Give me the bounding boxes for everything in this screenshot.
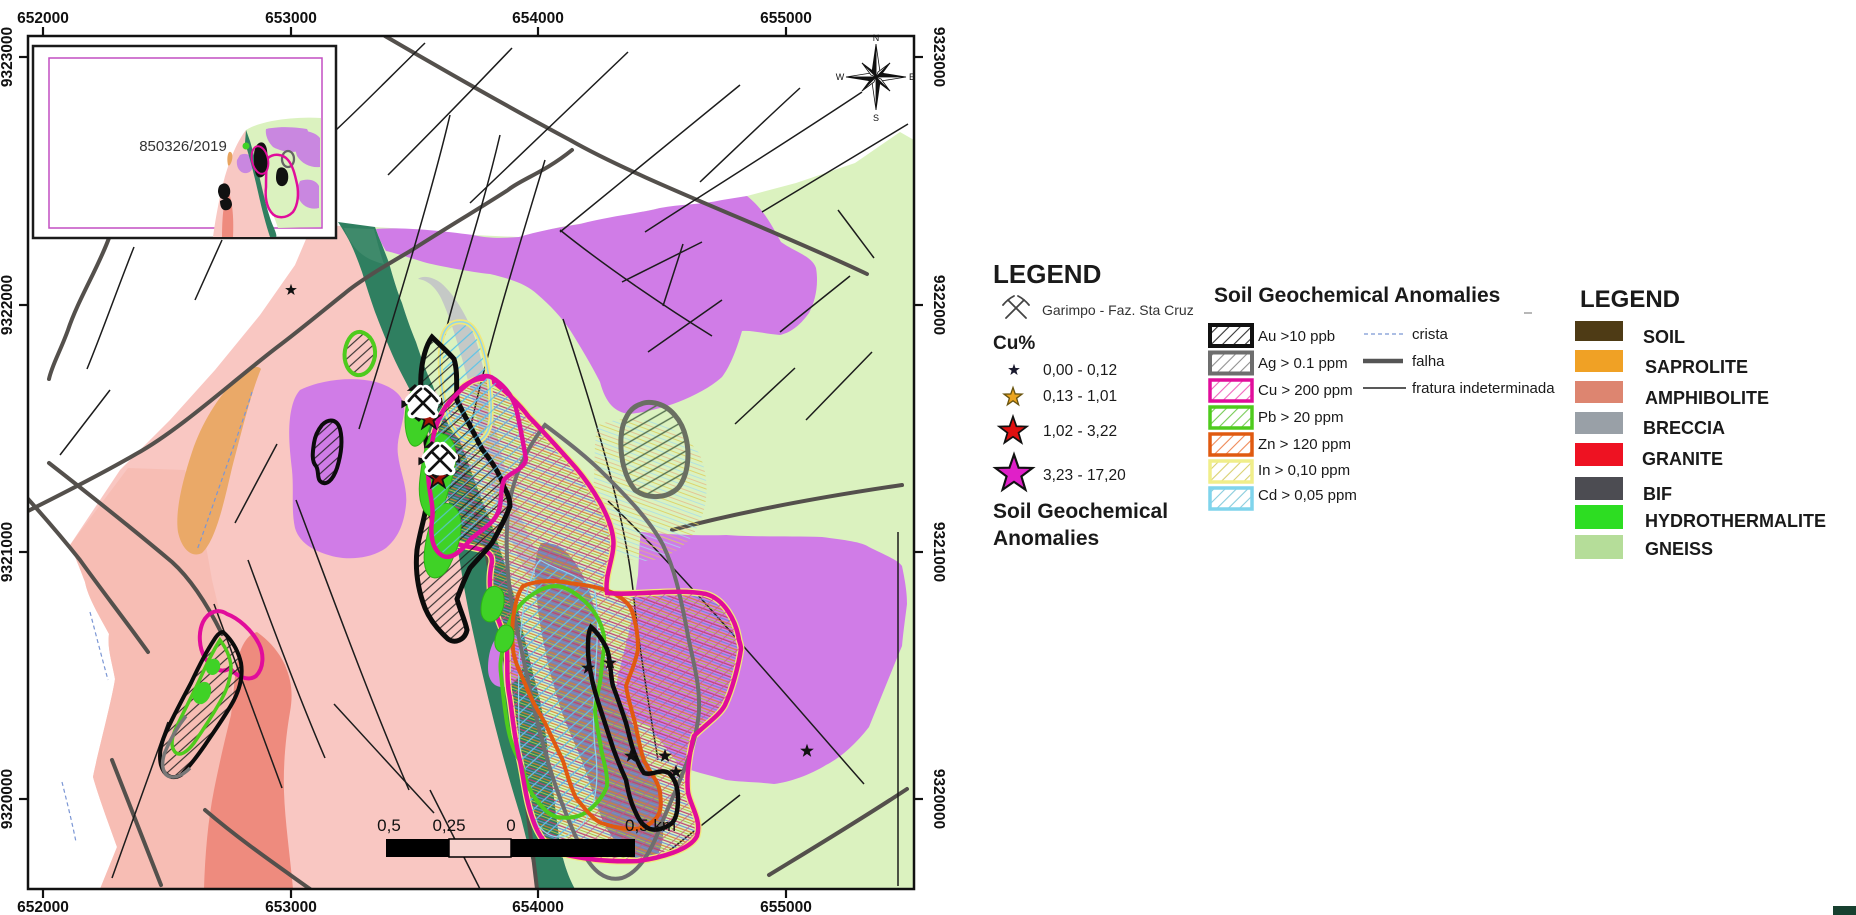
svg-text:In > 0,10 ppm: In > 0,10 ppm bbox=[1258, 462, 1350, 479]
svg-text:9321000: 9321000 bbox=[930, 522, 947, 582]
svg-text:3,23 - 17,20: 3,23 - 17,20 bbox=[1043, 467, 1126, 484]
svg-text:Cu > 200 ppm: Cu > 200 ppm bbox=[1258, 382, 1353, 399]
svg-text:GNEISS: GNEISS bbox=[1645, 539, 1713, 559]
svg-text:LEGEND: LEGEND bbox=[993, 259, 1101, 289]
svg-text:652000: 652000 bbox=[17, 10, 69, 27]
svg-text:fratura indeterminada: fratura indeterminada bbox=[1412, 380, 1555, 397]
svg-text:Ag > 0.1 ppm: Ag > 0.1 ppm bbox=[1258, 355, 1348, 372]
svg-text:Pb > 20 ppm: Pb > 20 ppm bbox=[1258, 409, 1343, 426]
svg-text:Garimpo - Faz. Sta Cruz: Garimpo - Faz. Sta Cruz bbox=[1042, 302, 1194, 318]
svg-text:SOIL: SOIL bbox=[1643, 327, 1685, 347]
svg-text:9320000: 9320000 bbox=[930, 769, 947, 829]
svg-text:GRANITE: GRANITE bbox=[1642, 449, 1723, 469]
svg-text:Cd > 0,05 ppm: Cd > 0,05 ppm bbox=[1258, 487, 1357, 504]
svg-text:falha: falha bbox=[1412, 353, 1445, 370]
svg-text:0,5: 0,5 bbox=[377, 816, 401, 835]
svg-text:850326/2019: 850326/2019 bbox=[139, 138, 227, 155]
svg-text:BRECCIA: BRECCIA bbox=[1643, 418, 1725, 438]
svg-text:9321000: 9321000 bbox=[0, 522, 16, 582]
svg-text:W: W bbox=[836, 72, 845, 82]
svg-text:653000: 653000 bbox=[265, 10, 317, 27]
svg-text:LEGEND: LEGEND bbox=[1580, 286, 1680, 313]
svg-text:9322000: 9322000 bbox=[930, 275, 947, 335]
svg-text:9323000: 9323000 bbox=[0, 27, 16, 87]
svg-text:1,02 - 3,22: 1,02 - 3,22 bbox=[1043, 423, 1117, 440]
svg-text:SAPROLITE: SAPROLITE bbox=[1645, 357, 1748, 377]
svg-text:0,00 - 0,12: 0,00 - 0,12 bbox=[1043, 362, 1117, 379]
svg-text:S: S bbox=[873, 113, 879, 123]
svg-text:Soil Geochemical: Soil Geochemical bbox=[993, 500, 1168, 523]
svg-text:BIF: BIF bbox=[1643, 484, 1672, 504]
svg-text:crista: crista bbox=[1412, 326, 1448, 343]
svg-text:655000: 655000 bbox=[760, 10, 812, 27]
svg-text:AMPHIBOLITE: AMPHIBOLITE bbox=[1645, 388, 1769, 408]
svg-text:Zn > 120 ppm: Zn > 120 ppm bbox=[1258, 436, 1351, 453]
svg-text:Anomalies: Anomalies bbox=[993, 527, 1099, 550]
svg-text:9323000: 9323000 bbox=[930, 27, 947, 87]
svg-text:655000: 655000 bbox=[760, 899, 812, 915]
svg-text:653000: 653000 bbox=[265, 899, 317, 915]
svg-text:654000: 654000 bbox=[512, 10, 564, 27]
svg-text:652000: 652000 bbox=[17, 899, 69, 915]
svg-text:Au >10 ppb: Au >10 ppb bbox=[1258, 328, 1335, 345]
svg-text:9320000: 9320000 bbox=[0, 769, 16, 829]
svg-text:HYDROTHERMALITE: HYDROTHERMALITE bbox=[1645, 511, 1826, 531]
svg-text:N: N bbox=[873, 33, 880, 43]
svg-text:0: 0 bbox=[506, 816, 515, 835]
svg-text:Cu%: Cu% bbox=[993, 333, 1035, 354]
svg-text:0,5 km: 0,5 km bbox=[625, 816, 676, 835]
svg-text:654000: 654000 bbox=[512, 899, 564, 915]
svg-text:9322000: 9322000 bbox=[0, 275, 16, 335]
svg-text:Soil Geochemical Anomalies: Soil Geochemical Anomalies bbox=[1214, 284, 1500, 307]
svg-text:0,13 - 1,01: 0,13 - 1,01 bbox=[1043, 388, 1117, 405]
svg-text:E: E bbox=[909, 72, 915, 82]
svg-text:0,25: 0,25 bbox=[432, 816, 465, 835]
